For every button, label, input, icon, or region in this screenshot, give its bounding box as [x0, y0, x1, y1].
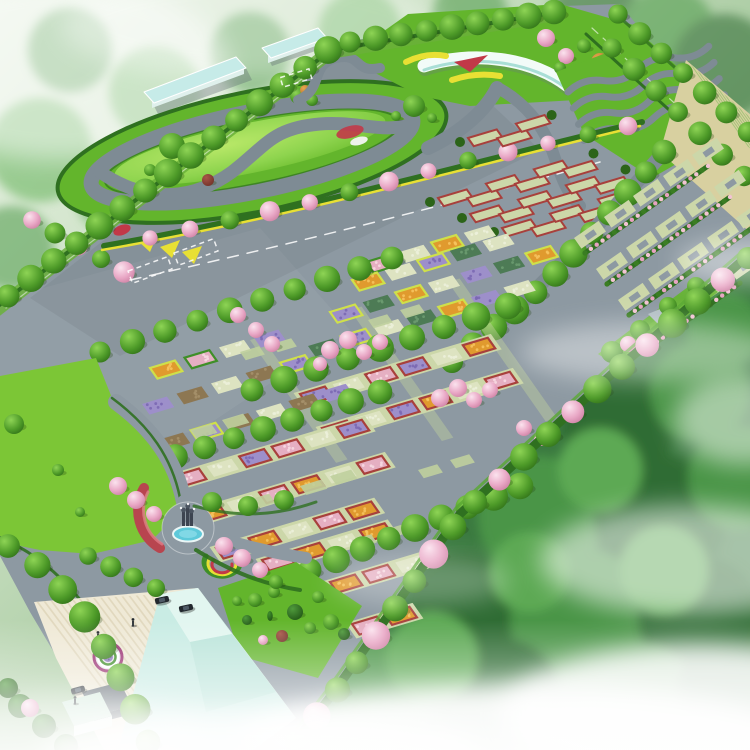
aerial-site-rendering: [0, 0, 750, 750]
landscape-plan-render: [0, 0, 750, 750]
